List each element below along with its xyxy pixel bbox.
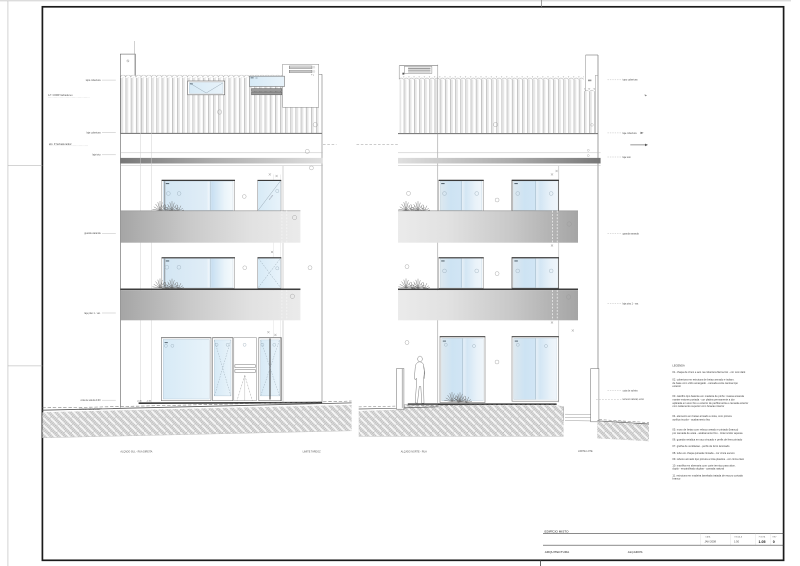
svg-text:EDIFÍCIO MISTO: EDIFÍCIO MISTO (545, 529, 570, 533)
svg-text:manter estores portada - cor p: manter estores portada - cor platina per… (672, 397, 734, 401)
svg-text:ALÇADOS: ALÇADOS (628, 550, 643, 554)
svg-text:branco: branco (672, 477, 680, 481)
svg-text:guarda varanda: guarda varanda (623, 233, 640, 236)
svg-text:alin. P. fachada tardoz: alin. P. fachada tardoz (49, 143, 72, 146)
svg-text:ALÇADO NORTE - RUA: ALÇADO NORTE - RUA (401, 450, 427, 453)
svg-text:FOLHA: FOLHA (759, 535, 766, 538)
svg-text:JAN 2008: JAN 2008 (705, 540, 717, 544)
svg-text:05. muro de betao com reboco a: 05. muro de betao com reboco areado e pi… (672, 428, 738, 432)
svg-text:terreno natural exist.: terreno natural exist. (80, 408, 101, 411)
svg-text:LEGENDA: LEGENDA (672, 364, 685, 368)
svg-text:ARQUITECTURA: ARQUITECTURA (545, 550, 570, 554)
svg-text:guarda varanda: guarda varanda (84, 232, 101, 235)
svg-text:02. cobertura em estrutura de: 02. cobertura em estrutura de betao arma… (672, 377, 734, 381)
svg-text:1:50: 1:50 (734, 540, 740, 544)
svg-text:07. grelha de ventilacao - per: 07. grelha de ventilacao - perfis de fer… (672, 444, 730, 448)
svg-text:ALÇADO SUL - RUA DIREITA: ALÇADO SUL - RUA DIREITA (120, 450, 152, 453)
svg-text:11. estrutura em madeira lamel: 11. estrutura em madeira lamelada tratad… (672, 473, 743, 477)
svg-text:topo cobertura: topo cobertura (86, 79, 102, 82)
svg-text:terreno natural, exist.: terreno natural, exist. (623, 398, 645, 401)
svg-text:04. elemento em betao armado a: 04. elemento em betao armado a vista, co… (672, 414, 732, 418)
svg-text:aplicada em eixo fixo e exteri: aplicada em eixo fixo e exterior de perf… (672, 401, 748, 405)
svg-text:03. caixilho tipo batente em m: 03. caixilho tipo batente em madeira de … (672, 394, 744, 398)
svg-text:com isolamento superior com fu: com isolamento superior com furacao inte… (672, 404, 724, 408)
svg-text:por camada de areia - acabamen: por camada de areia - acabamento fino - … (672, 431, 743, 435)
svg-text:laje piso 1 - var.: laje piso 1 - var. (623, 302, 639, 305)
svg-text:duplo - encaixilhado duplas -: duplo - encaixilhado duplas - camada nat… (672, 467, 724, 471)
svg-text:A.T. COMP. fachada rev.: A.T. COMP. fachada rev. (48, 94, 73, 97)
svg-text:acrilica incolor - acabamento: acrilica incolor - acabamento liso (672, 418, 710, 422)
svg-text:laje teto: laje teto (92, 154, 101, 157)
svg-text:08. tubo em chapa quinada zinc: 08. tubo em chapa quinada zincada - cor … (672, 451, 735, 455)
svg-text:logradouro: logradouro (616, 421, 626, 423)
svg-text:06. guarda metalica em aco zin: 06. guarda metalica em aco zincado e per… (672, 438, 742, 442)
svg-text:cota de soleira: cota de soleira (623, 390, 639, 393)
svg-text:laje piso 1 - var.: laje piso 1 - var. (84, 312, 100, 315)
svg-text:laje cobertura: laje cobertura (623, 132, 638, 135)
svg-text:01. chapa de zinco e aco na co: 01. chapa de zinco e aco na cobertura fl… (672, 370, 746, 374)
svg-text:topo cobertura: topo cobertura (623, 79, 639, 82)
svg-text:ESCALA: ESCALA (735, 535, 743, 538)
svg-text:laje cobertura: laje cobertura (87, 131, 102, 134)
svg-text:exterior: exterior (672, 384, 681, 388)
svg-text:09. reboco armado tipo pintur: 09. reboco armado tipo pintura a tinta p… (672, 457, 744, 461)
svg-text:LIMITE LOTE: LIMITE LOTE (578, 450, 593, 453)
svg-text:1.05: 1.05 (759, 540, 766, 544)
svg-text:0: 0 (773, 540, 775, 544)
svg-text:LIMITE TARDOZ: LIMITE TARDOZ (303, 451, 322, 454)
svg-text:de base com vidro amargado - c: de base com vidro amargado - camada extr… (672, 381, 738, 385)
svg-text:cota de soleira 0.00: cota de soleira 0.00 (80, 399, 101, 402)
svg-text:P y: P y (311, 75, 314, 77)
svg-text:laje teto: laje teto (623, 156, 632, 159)
svg-text:DATA: DATA (706, 535, 711, 538)
